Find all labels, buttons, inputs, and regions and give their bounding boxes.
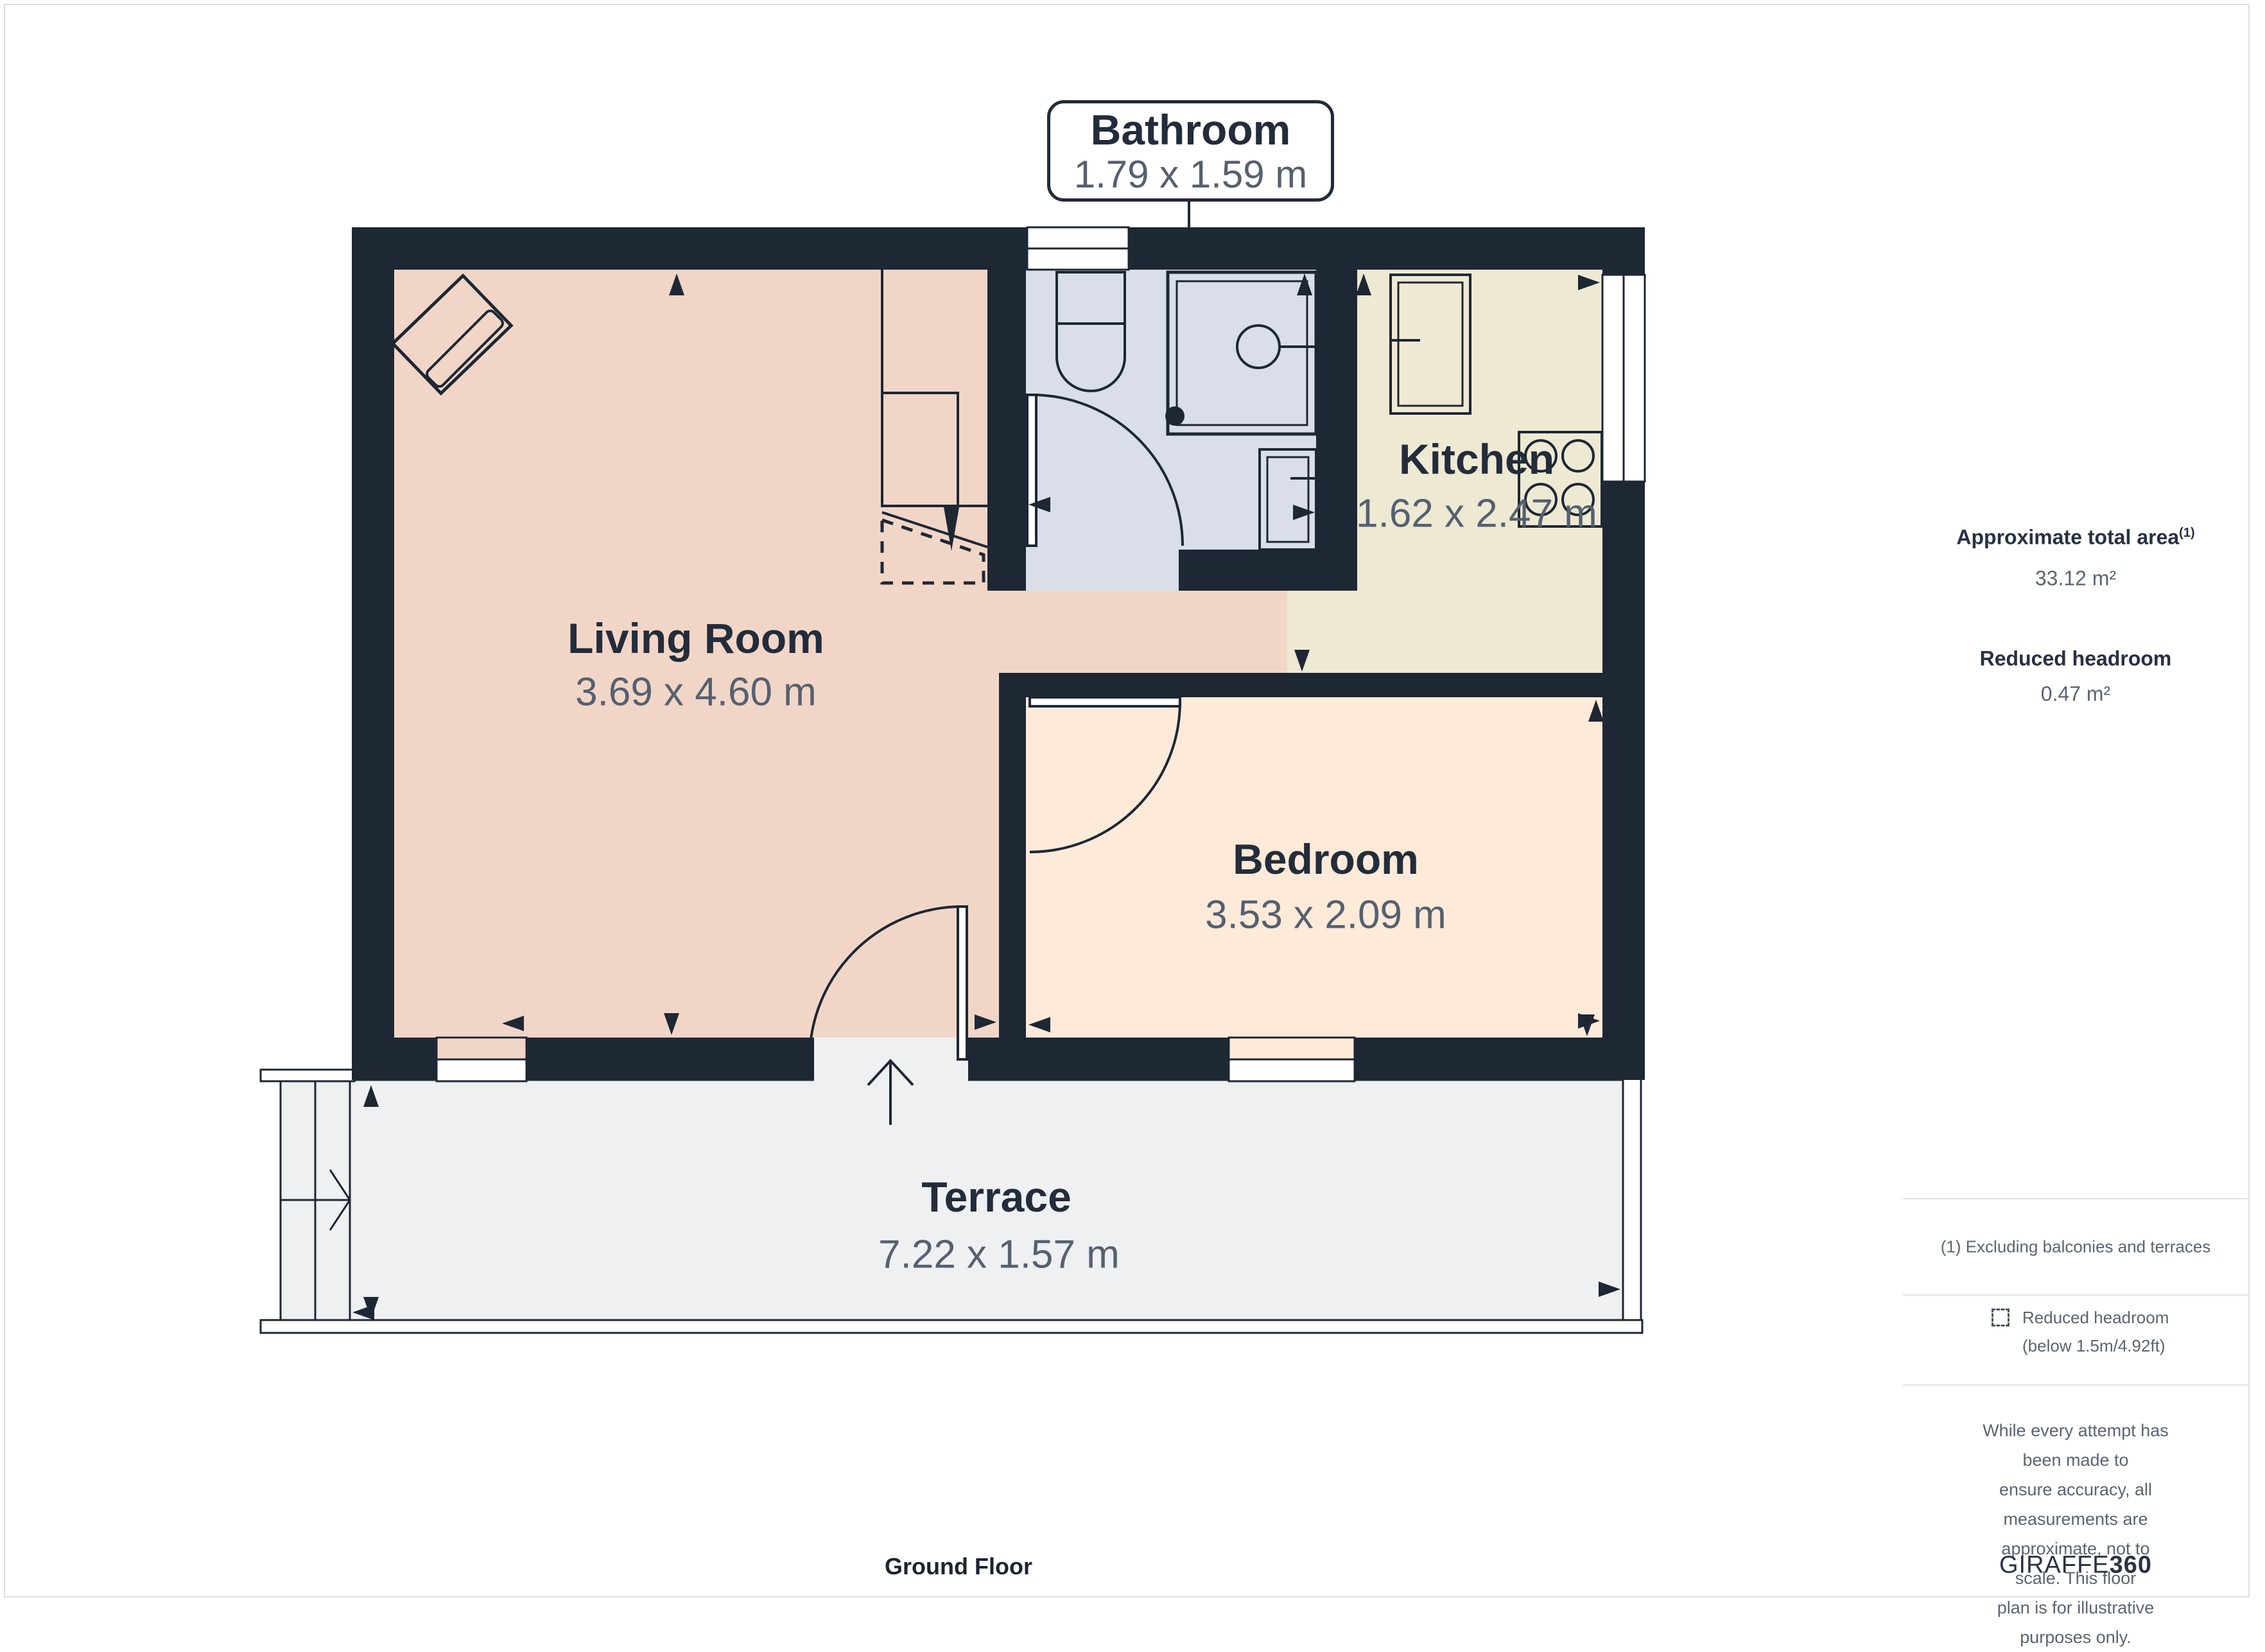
terrace-bottom-cap [261, 1320, 1642, 1333]
sidebar-divider-1 [1903, 1198, 2250, 1199]
reduced-headroom-label: Reduced headroom [1980, 647, 2172, 671]
giraffe360-logo: GIRAFFE360 [1999, 1552, 2152, 1579]
callout-room-name: Bathroom [1091, 106, 1291, 153]
terrace-label: Terrace [921, 1172, 1072, 1221]
bedroom-label: Bedroom [1233, 835, 1419, 883]
floor-title: Ground Floor [885, 1553, 1032, 1580]
sidebar-footnote: (1) Excluding balconies and terraces [1941, 1237, 2211, 1257]
kitchen-label: Kitchen [1399, 435, 1554, 483]
bedroom-dims: 3.53 x 2.09 m [1205, 892, 1446, 938]
shower-drain [1165, 406, 1185, 426]
reduced-headroom-value: 0.47 m² [2041, 683, 2110, 706]
kitchen-dims: 1.62 x 2.47 m [1356, 491, 1597, 537]
bathroom-window [1027, 227, 1129, 270]
bedroom-window [1229, 1038, 1355, 1081]
bathroom-threshold [1026, 550, 1179, 591]
living-room-window [437, 1038, 526, 1081]
total-area-value: 33.12 m² [2035, 567, 2116, 591]
reduced-headroom-legend: Reduced headroom (below 1.5m/4.92ft) [2022, 1303, 2169, 1360]
living-room-label: Living Room [568, 614, 824, 663]
callout-room-dims: 1.79 x 1.59 m [1074, 153, 1308, 196]
sidebar-divider-2 [1903, 1294, 2250, 1296]
living-room-dims: 3.69 x 4.60 m [575, 670, 817, 715]
total-area-footnote-marker: (1) [2179, 526, 2194, 540]
reduced-headroom-legend-icon [1992, 1309, 2009, 1326]
total-area-label: Approximate total area(1) [1956, 526, 2194, 550]
stairs-top-cap [261, 1070, 354, 1081]
disclaimer: While every attempt has been made to ens… [1981, 1416, 2171, 1652]
room-callout-bathroom: Bathroom 1.79 x 1.59 m [1047, 100, 1334, 202]
floor-plan-svg [0, 0, 2265, 1603]
floorplan-page: { "title": "Ground Floor", "callout": { … [0, 0, 2265, 1603]
terrace-dims: 7.22 x 1.57 m [878, 1232, 1120, 1278]
kitchen-window [1602, 275, 1645, 482]
sidebar-divider-3 [1903, 1384, 2250, 1386]
